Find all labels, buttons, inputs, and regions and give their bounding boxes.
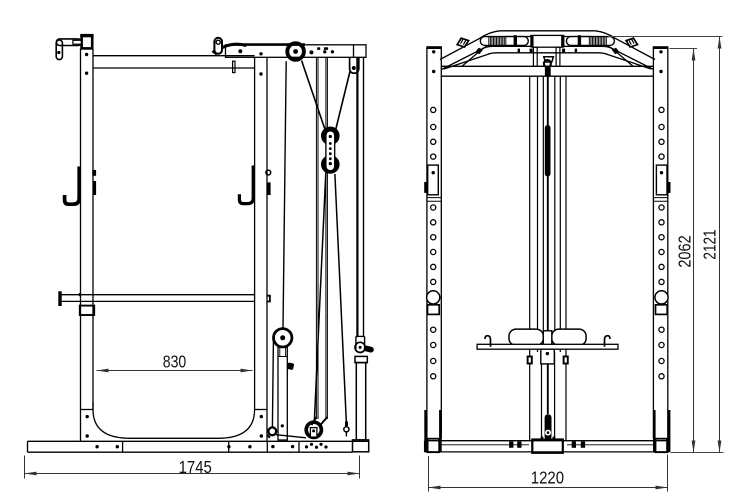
- svg-text:2121: 2121: [700, 229, 720, 259]
- svg-text:2062: 2062: [674, 235, 694, 267]
- svg-text:1220: 1220: [531, 467, 565, 487]
- svg-text:1745: 1745: [179, 457, 212, 477]
- svg-text:830: 830: [163, 352, 187, 372]
